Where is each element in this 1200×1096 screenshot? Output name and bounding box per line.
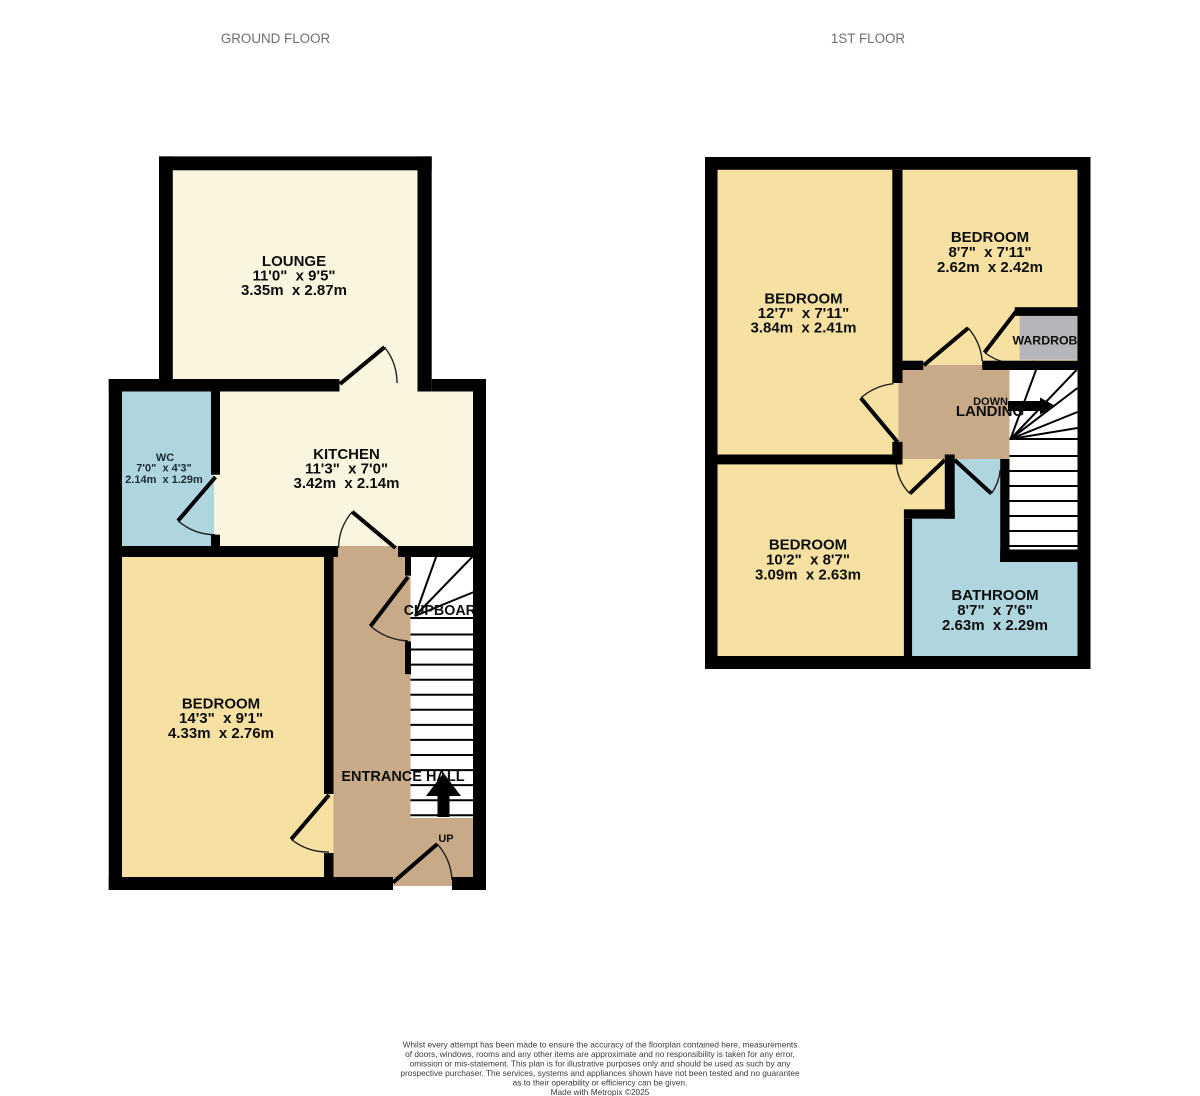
svg-text:ENTRANCE HALL: ENTRANCE HALL xyxy=(341,769,464,785)
svg-text:3.35m x 2.87m: 3.35m x 2.87m xyxy=(241,282,347,299)
svg-text:2.63m x 2.29m: 2.63m x 2.29m xyxy=(942,617,1048,634)
svg-text:3.09m x 2.63m: 3.09m x 2.63m xyxy=(755,567,861,584)
svg-text:4.33m x 2.76m: 4.33m x 2.76m xyxy=(168,725,274,742)
svg-text:2.62m x 2.42m: 2.62m x 2.42m xyxy=(937,259,1043,276)
svg-text:3.42m x 2.14m: 3.42m x 2.14m xyxy=(294,475,400,492)
svg-text:of doors, windows, rooms and a: of doors, windows, rooms and any other i… xyxy=(405,1049,795,1059)
svg-text:prospective purchaser. The ser: prospective purchaser. The services, sys… xyxy=(400,1068,800,1078)
svg-text:3.84m x 2.41m: 3.84m x 2.41m xyxy=(751,320,857,337)
svg-text:Whilst every attempt has been: Whilst every attempt has been made to en… xyxy=(403,1040,798,1050)
svg-text:LANDING: LANDING xyxy=(956,403,1024,420)
svg-text:WARDROBE: WARDROBE xyxy=(1013,333,1086,347)
svg-text:7'0" x 4'3": 7'0" x 4'3" xyxy=(136,463,191,475)
svg-text:UP: UP xyxy=(438,833,453,845)
svg-text:2.14m x 1.29m: 2.14m x 1.29m xyxy=(125,474,203,486)
svg-text:as to their operability or eff: as to their operability or efficiency ca… xyxy=(513,1078,688,1088)
svg-text:omission or mis-statement. Thi: omission or mis-statement. This plan is … xyxy=(410,1059,792,1069)
svg-text:Made with Metropix ©2025: Made with Metropix ©2025 xyxy=(551,1087,650,1096)
svg-text:GROUND FLOOR: GROUND FLOOR xyxy=(221,31,331,46)
svg-text:1ST FLOOR: 1ST FLOOR xyxy=(831,31,905,46)
